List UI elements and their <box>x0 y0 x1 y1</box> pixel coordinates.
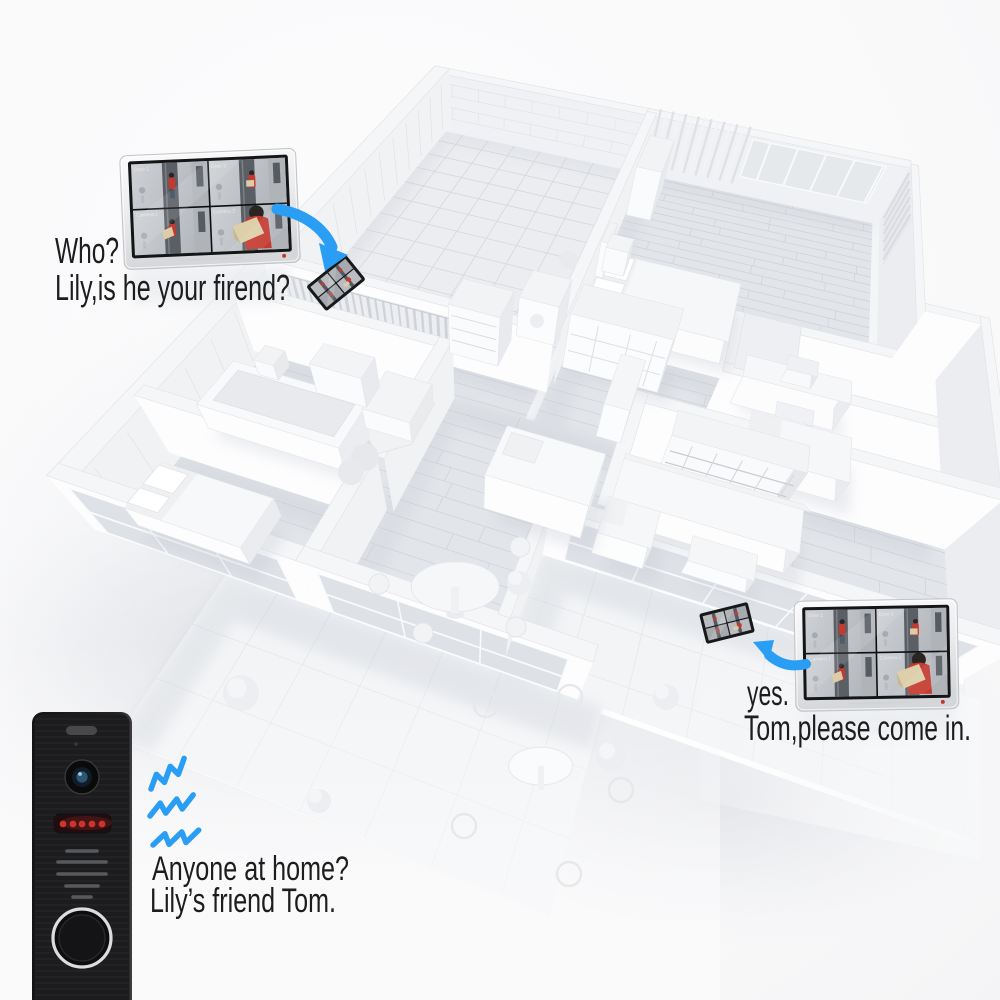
svg-text:Door 1: Door 1 <box>808 613 823 619</box>
svg-text:yes.: yes. <box>747 674 789 713</box>
svg-text:Camera 2: Camera 2 <box>213 208 235 215</box>
svg-text:Door 1: Door 1 <box>134 167 149 174</box>
svg-text:Lily,is he your firend?: Lily,is he your firend? <box>55 267 290 308</box>
svg-text:Camera 2: Camera 2 <box>880 655 902 661</box>
svg-text:Lily’s friend Tom.: Lily’s friend Tom. <box>150 882 336 920</box>
svg-text:Tom,please come in.: Tom,please come in. <box>744 709 971 748</box>
svg-text:Who?: Who? <box>55 230 119 271</box>
